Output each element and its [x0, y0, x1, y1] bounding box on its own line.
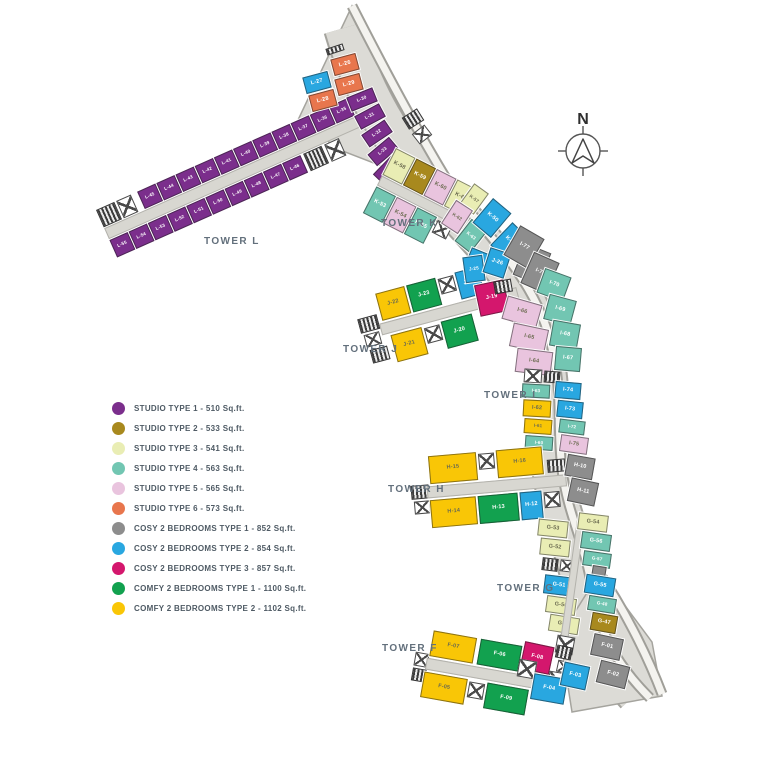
legend-item: STUDIO TYPE 4 - 563 Sq.ft. — [112, 462, 306, 475]
unit-block[interactable]: H-10 — [564, 454, 595, 481]
elevator-core-icon — [544, 491, 561, 508]
legend-label: STUDIO TYPE 4 - 563 Sq.ft. — [134, 464, 245, 473]
legend-item: STUDIO TYPE 6 - 573 Sq.ft. — [112, 502, 306, 515]
legend-swatch-icon — [112, 522, 125, 535]
legend-swatch-icon — [112, 562, 125, 575]
legend-swatch-icon — [112, 602, 125, 615]
unit-block[interactable]: G-53 — [537, 518, 569, 538]
unit-block[interactable]: G-52 — [539, 537, 571, 557]
tower-label: TOWER H — [388, 484, 445, 495]
legend-label: COSY 2 BEDROOMS TYPE 2 - 854 Sq.ft. — [134, 544, 296, 553]
legend-item: STUDIO TYPE 3 - 541 Sq.ft. — [112, 442, 306, 455]
legend-label: COSY 2 BEDROOMS TYPE 3 - 857 Sq.ft. — [134, 564, 296, 573]
unit-block[interactable]: H-13 — [478, 493, 520, 524]
compass-icon: N — [556, 108, 626, 198]
legend-item: STUDIO TYPE 5 - 565 Sq.ft. — [112, 482, 306, 495]
legend-label: STUDIO TYPE 5 - 565 Sq.ft. — [134, 484, 245, 493]
legend-swatch-icon — [112, 502, 125, 515]
tower-label: TOWER L — [204, 236, 260, 247]
unit-block[interactable]: I-68 — [549, 320, 581, 350]
unit-block[interactable]: I-73 — [556, 400, 584, 420]
legend-swatch-icon — [112, 482, 125, 495]
legend-item: COSY 2 BEDROOMS TYPE 3 - 857 Sq.ft. — [112, 562, 306, 575]
unit-block[interactable]: G-54 — [577, 512, 609, 533]
legend-label: STUDIO TYPE 1 - 510 Sq.ft. — [134, 404, 245, 413]
legend-item: COMFY 2 BEDROOMS TYPE 1 - 1100 Sq.ft. — [112, 582, 306, 595]
legend-label: STUDIO TYPE 6 - 573 Sq.ft. — [134, 504, 245, 513]
tower-label: TOWER K — [381, 218, 438, 229]
unit-block[interactable]: H-14 — [430, 496, 478, 528]
compass-north-label: N — [577, 111, 589, 128]
stair-core-icon — [547, 458, 566, 473]
unit-block[interactable]: I-67 — [554, 346, 582, 372]
legend-label: STUDIO TYPE 3 - 541 Sq.ft. — [134, 444, 245, 453]
legend-item: STUDIO TYPE 1 - 510 Sq.ft. — [112, 402, 306, 415]
unit-block[interactable]: I-74 — [554, 381, 581, 400]
legend-label: COMFY 2 BEDROOMS TYPE 1 - 1100 Sq.ft. — [134, 584, 306, 593]
tower-label: TOWER I — [484, 390, 536, 401]
stair-core-icon — [541, 557, 558, 572]
tower-label: TOWER G — [497, 583, 554, 594]
legend-swatch-icon — [112, 422, 125, 435]
legend-swatch-icon — [112, 462, 125, 475]
legend-item: COMFY 2 BEDROOMS TYPE 2 - 1102 Sq.ft. — [112, 602, 306, 615]
unit-block[interactable]: I-72 — [558, 418, 586, 435]
unit-block[interactable]: I-62 — [523, 399, 552, 417]
legend-label: STUDIO TYPE 2 - 533 Sq.ft. — [134, 424, 245, 433]
tower-label: TOWER J — [343, 344, 398, 355]
elevator-core-icon — [524, 368, 543, 383]
site-plan-canvas: L-45L-44L-43L-42L-41L-40L-39L-38L-37L-36… — [0, 0, 768, 768]
unit-block[interactable]: H-16 — [496, 446, 544, 478]
tower-label: TOWER F — [382, 643, 438, 654]
legend-swatch-icon — [112, 582, 125, 595]
elevator-core-icon — [467, 681, 486, 700]
unit-block[interactable]: H-12 — [519, 491, 543, 521]
legend-item: COSY 2 BEDROOMS TYPE 1 - 852 Sq.ft. — [112, 522, 306, 535]
legend-item: COSY 2 BEDROOMS TYPE 2 - 854 Sq.ft. — [112, 542, 306, 555]
elevator-core-icon — [478, 452, 495, 469]
legend-swatch-icon — [112, 442, 125, 455]
elevator-core-icon — [414, 500, 431, 514]
unit-block[interactable]: I-61 — [524, 418, 553, 435]
unit-block[interactable]: H-15 — [428, 452, 478, 484]
legend-label: COMFY 2 BEDROOMS TYPE 2 - 1102 Sq.ft. — [134, 604, 306, 613]
legend-item: STUDIO TYPE 2 - 533 Sq.ft. — [112, 422, 306, 435]
legend-swatch-icon — [112, 402, 125, 415]
unit-block[interactable]: F-03 — [560, 662, 590, 691]
legend-label: COSY 2 BEDROOMS TYPE 1 - 852 Sq.ft. — [134, 524, 296, 533]
legend: STUDIO TYPE 1 - 510 Sq.ft.STUDIO TYPE 2 … — [112, 402, 306, 615]
legend-swatch-icon — [112, 542, 125, 555]
